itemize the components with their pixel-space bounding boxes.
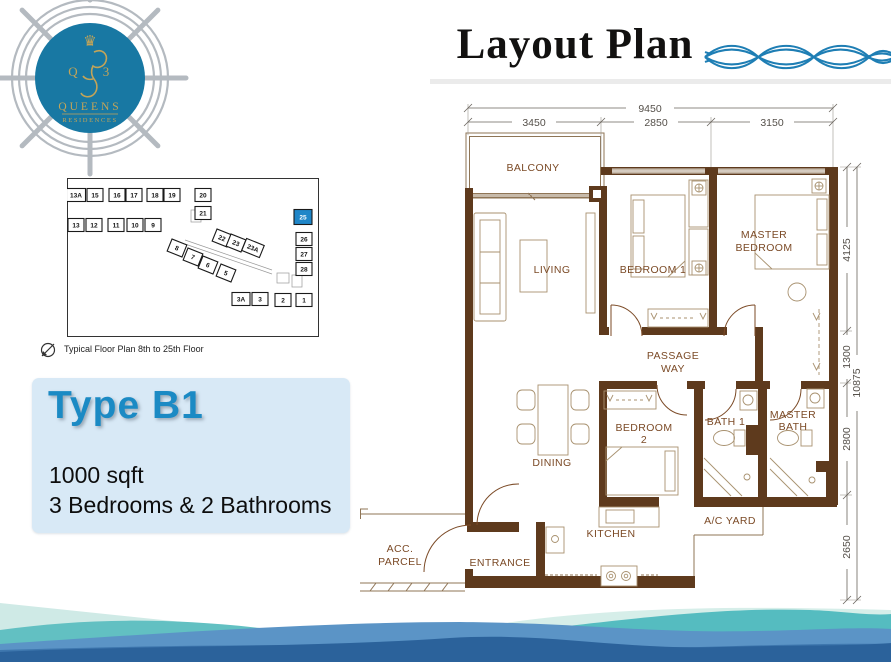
- svg-text:13: 13: [72, 222, 80, 229]
- label-master-bedroom-2: BEDROOM: [735, 242, 792, 254]
- dining-set: [517, 385, 589, 455]
- svg-text:25: 25: [299, 214, 307, 221]
- type-config: 3 Bedrooms & 2 Bathrooms: [49, 490, 332, 520]
- floor-plan: BALCONY LIVING BEDROOM 1 MASTER BEDROOM …: [360, 95, 891, 626]
- label-entrance: ENTRANCE: [470, 557, 531, 569]
- compass-icon: [38, 340, 58, 360]
- key-unit-19: 19: [164, 189, 180, 202]
- dim-right-seg4: 2650: [841, 535, 853, 559]
- svg-text:12: 12: [90, 222, 98, 229]
- waves-graphic: [0, 572, 891, 662]
- header-divider: [430, 79, 891, 84]
- key-unit-11: 11: [108, 219, 124, 232]
- label-bedroom1: BEDROOM 1: [620, 264, 687, 276]
- dim-right-total: 10875: [851, 368, 863, 397]
- key-unit-12: 12: [86, 219, 102, 232]
- svg-text:10: 10: [131, 222, 139, 229]
- plan-thin-walls: [360, 133, 763, 591]
- key-unit-16: 16: [109, 189, 125, 202]
- svg-text:17: 17: [130, 192, 138, 199]
- svg-text:18: 18: [151, 192, 159, 199]
- svg-text:2: 2: [281, 297, 285, 304]
- label-acc-parcel-1: ACC.: [387, 543, 414, 555]
- svg-text:3: 3: [258, 296, 262, 303]
- master-closet: [813, 309, 820, 375]
- crown-icon: ♛: [83, 33, 96, 50]
- label-acc-parcel-2: PARCEL: [378, 556, 422, 568]
- key-unit-17: 17: [126, 189, 142, 202]
- brochure-page: { "header": { "title": "Layout Plan" }, …: [0, 0, 891, 662]
- type-area: 1000 sqft: [49, 460, 332, 490]
- label-living: LIVING: [534, 264, 571, 276]
- sofa: [474, 213, 506, 321]
- key-unit-18: 18: [147, 189, 163, 202]
- key-unit-9: 9: [145, 219, 161, 232]
- label-master-bath-2: BATH: [779, 421, 808, 433]
- key-unit-10: 10: [127, 219, 143, 232]
- key-unit-20: 20: [195, 189, 211, 202]
- svg-text:27: 27: [300, 251, 308, 258]
- svg-text:28: 28: [300, 266, 308, 273]
- wave-icon: [703, 36, 891, 78]
- label-dining: DINING: [532, 457, 571, 469]
- label-ac-yard: A/C YARD: [704, 515, 756, 527]
- key-plan: 13A151617181920211312111098765222323A252…: [67, 178, 319, 337]
- dim-top-seg3: 3150: [760, 117, 784, 129]
- key-unit-25: 25: [294, 210, 312, 225]
- svg-text:21: 21: [199, 210, 207, 217]
- type-panel: Type B1 1000 sqft 3 Bedrooms & 2 Bathroo…: [32, 378, 350, 533]
- dim-right-seg2: 1300: [841, 345, 853, 369]
- label-kitchen: KITCHEN: [587, 528, 636, 540]
- logo-q: Q: [68, 64, 78, 79]
- svg-text:9: 9: [151, 222, 155, 229]
- svg-text:15: 15: [91, 192, 99, 199]
- label-passage-2: WAY: [661, 363, 685, 375]
- dim-right-seg1: 4125: [841, 238, 853, 262]
- key-unit-26: 26: [296, 233, 312, 246]
- key-unit-15: 15: [87, 189, 103, 202]
- key-unit-13: 13: [68, 219, 84, 232]
- logo-subname: RESIDENCES: [62, 117, 117, 124]
- svg-text:13A: 13A: [70, 192, 82, 199]
- label-master-bath-1: MASTER: [770, 409, 816, 421]
- key-unit-27: 27: [296, 248, 312, 261]
- key-unit-3A: 3A: [232, 293, 250, 306]
- key-unit-2: 2: [275, 294, 291, 307]
- plan-room-labels: BALCONY LIVING BEDROOM 1 MASTER BEDROOM …: [378, 162, 816, 569]
- closet-bedroom2: [604, 391, 656, 409]
- key-unit-3: 3: [252, 293, 268, 306]
- label-bath1: BATH 1: [707, 416, 745, 428]
- tv-console: [586, 213, 595, 313]
- bed2: [606, 447, 678, 495]
- label-bedroom2-2: 2: [641, 434, 647, 446]
- key-plan-caption: Typical Floor Plan 8th to 25th Floor: [64, 344, 204, 354]
- dim-top-total: 9450: [638, 103, 662, 115]
- svg-text:11: 11: [113, 222, 120, 229]
- page-title: Layout Plan: [437, 20, 713, 69]
- type-title: Type B1: [48, 384, 204, 428]
- label-balcony: BALCONY: [507, 162, 560, 174]
- svg-text:20: 20: [199, 192, 207, 199]
- svg-text:1: 1: [302, 297, 306, 304]
- dim-right-seg3: 2800: [841, 427, 853, 451]
- label-master-bedroom-1: MASTER: [741, 229, 787, 241]
- logo-name: QUEENS: [58, 101, 121, 113]
- svg-text:3A: 3A: [237, 296, 246, 303]
- ship-wheel-logo: ♛ Q 3 QUEENS RESIDENCES: [0, 0, 245, 200]
- dim-top-seg1: 3450: [522, 117, 546, 129]
- type-details: 1000 sqft 3 Bedrooms & 2 Bathrooms: [49, 460, 332, 521]
- svg-text:26: 26: [300, 236, 308, 243]
- label-passage-1: PASSAGE: [647, 350, 699, 362]
- logo-3: 3: [103, 64, 110, 79]
- dim-top-seg2: 2850: [644, 117, 668, 129]
- key-unit-21: 21: [195, 207, 211, 220]
- key-unit-1: 1: [296, 294, 312, 307]
- wardrobe-passage: [648, 309, 708, 327]
- key-unit-13A: 13A: [67, 189, 86, 202]
- svg-text:19: 19: [168, 192, 176, 199]
- svg-text:16: 16: [113, 192, 121, 199]
- key-unit-28: 28: [296, 263, 312, 276]
- label-bedroom2-1: BEDROOM: [615, 422, 672, 434]
